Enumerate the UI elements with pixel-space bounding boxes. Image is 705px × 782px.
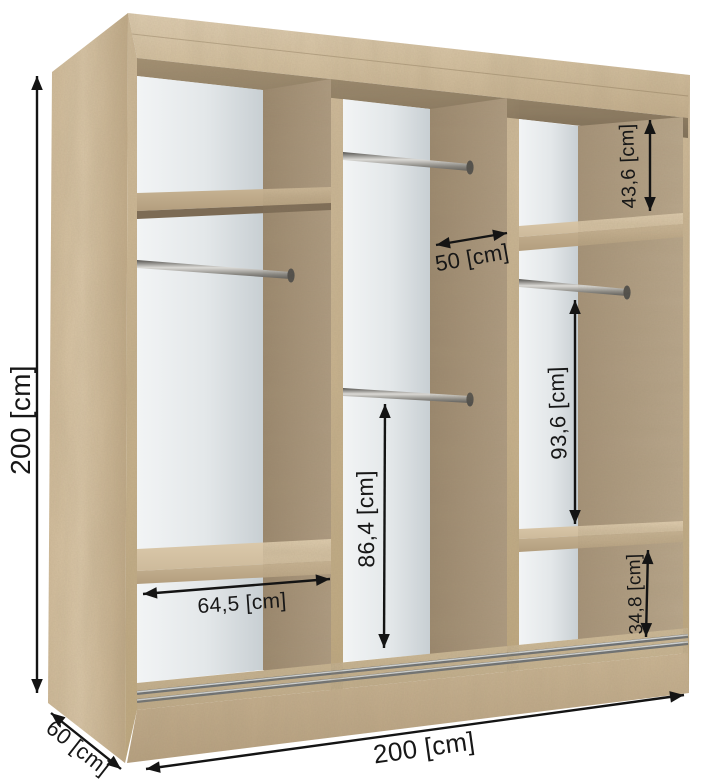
middle-lower-dimension-label: 86,4 [cm] bbox=[352, 470, 381, 568]
height-dimension-label: 200 [cm] bbox=[5, 365, 37, 475]
right-bottom-dimension-label: 34,8 [cm] bbox=[624, 553, 649, 635]
right-middle-dimension-label: 93,6 [cm] bbox=[543, 366, 572, 460]
back-panel-middle bbox=[343, 99, 430, 662]
dimension-line-middle-lower bbox=[384, 404, 385, 648]
wardrobe-dimension-diagram: 200 [cm] 200 [cm] 60 [cm] 50 [cm] 43,6 [… bbox=[0, 0, 705, 782]
wardrobe-illustration bbox=[0, 0, 705, 782]
right-top-dimension-label: 43,6 [cm] bbox=[616, 123, 642, 209]
